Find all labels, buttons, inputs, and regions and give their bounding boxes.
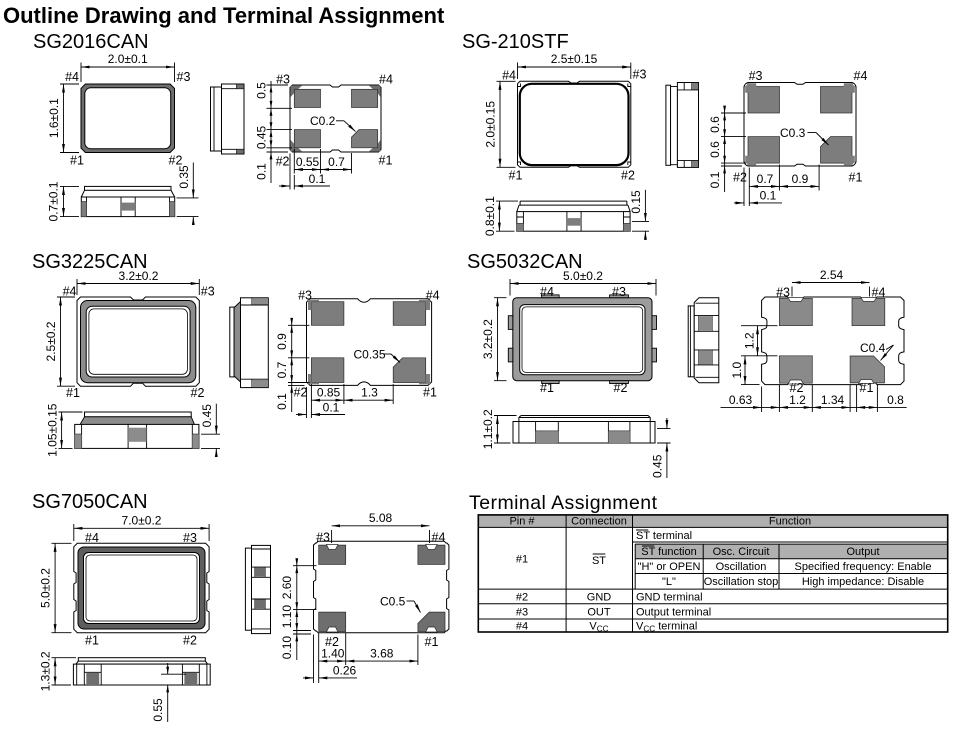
svg-text:0.1: 0.1 <box>309 172 326 186</box>
svg-text:Pin #: Pin # <box>509 515 535 527</box>
svg-text:#1: #1 <box>540 381 554 395</box>
svg-text:0.45: 0.45 <box>651 454 665 478</box>
svg-text:Oscillation: Oscillation <box>716 561 767 573</box>
svg-text:5.0±0.2: 5.0±0.2 <box>39 568 53 608</box>
svg-text:0.7: 0.7 <box>275 361 289 378</box>
svg-text:2.60: 2.60 <box>280 576 294 600</box>
svg-text:2.5±0.2: 2.5±0.2 <box>44 321 58 361</box>
svg-text:1.2: 1.2 <box>789 393 806 407</box>
svg-text:#4: #4 <box>516 621 528 633</box>
svg-text:0.6: 0.6 <box>708 141 722 158</box>
svg-text:#2: #2 <box>191 386 205 400</box>
svg-text:#4: #4 <box>540 285 554 299</box>
svg-text:#4: #4 <box>502 69 516 83</box>
svg-text:#3: #3 <box>749 69 763 83</box>
svg-text:OUT: OUT <box>587 607 611 619</box>
svg-text:0.35: 0.35 <box>177 165 191 189</box>
svg-text:#3: #3 <box>276 73 290 87</box>
svg-text:0.1: 0.1 <box>275 393 289 410</box>
svg-text:#3: #3 <box>633 68 647 82</box>
svg-text:Output terminal: Output terminal <box>636 607 711 619</box>
svg-text:0.1: 0.1 <box>255 163 269 180</box>
svg-text:0.26: 0.26 <box>333 664 357 678</box>
svg-text:2.54: 2.54 <box>820 268 844 282</box>
svg-text:0.8: 0.8 <box>887 393 904 407</box>
svg-text:#3: #3 <box>516 607 528 619</box>
svg-text:1.05±0.15: 1.05±0.15 <box>46 403 60 457</box>
svg-text:0.6: 0.6 <box>708 116 722 133</box>
svg-text:GND: GND <box>587 592 612 604</box>
svg-text:#4: #4 <box>872 286 886 300</box>
svg-text:#2: #2 <box>621 169 635 183</box>
svg-text:#1: #1 <box>66 386 80 400</box>
svg-text:C0.2: C0.2 <box>310 114 336 128</box>
svg-text:SG-210STF: SG-210STF <box>462 31 569 53</box>
svg-text:1.3±0.2: 1.3±0.2 <box>39 651 53 691</box>
svg-text:C0.35: C0.35 <box>354 348 386 362</box>
svg-text:#1: #1 <box>425 635 439 649</box>
svg-text:0.55: 0.55 <box>296 155 320 169</box>
svg-text:SG2016CAN: SG2016CAN <box>33 31 149 53</box>
svg-text:0.85: 0.85 <box>317 386 341 400</box>
svg-text:ST terminal: ST terminal <box>636 530 692 542</box>
svg-text:#3: #3 <box>776 286 790 300</box>
svg-text:#3: #3 <box>298 289 312 303</box>
svg-text:1.1±0.2: 1.1±0.2 <box>481 409 495 449</box>
svg-text:#4: #4 <box>65 70 79 84</box>
svg-text:#4: #4 <box>85 531 99 545</box>
svg-text:#1: #1 <box>516 554 528 566</box>
svg-text:#3: #3 <box>316 531 330 545</box>
svg-text:"H" or OPEN: "H" or OPEN <box>638 561 701 573</box>
svg-text:0.9: 0.9 <box>792 172 809 186</box>
svg-text:0.7±0.1: 0.7±0.1 <box>47 181 61 221</box>
svg-text:2.5±0.15: 2.5±0.15 <box>551 52 598 66</box>
svg-text:Function: Function <box>769 515 811 527</box>
svg-text:3.2±0.2: 3.2±0.2 <box>119 269 159 283</box>
svg-text:Oscillation stop: Oscillation stop <box>704 576 779 588</box>
svg-text:#1: #1 <box>423 386 437 400</box>
svg-text:1.34: 1.34 <box>821 393 845 407</box>
svg-text:#1: #1 <box>509 169 523 183</box>
svg-text:C0.4: C0.4 <box>860 341 886 355</box>
svg-text:Specified frequency: Enable: Specified frequency: Enable <box>795 561 932 573</box>
svg-text:0.1: 0.1 <box>760 189 777 203</box>
svg-text:C0.5: C0.5 <box>380 595 406 609</box>
svg-text:0.45: 0.45 <box>255 125 269 149</box>
svg-text:#4: #4 <box>63 285 77 299</box>
svg-text:#2: #2 <box>294 386 308 400</box>
svg-text:0.10: 0.10 <box>280 636 294 660</box>
svg-text:7.0±0.2: 7.0±0.2 <box>122 514 162 528</box>
svg-text:ST function: ST function <box>641 546 696 558</box>
svg-text:#3: #3 <box>183 531 197 545</box>
svg-text:#2: #2 <box>183 634 197 648</box>
svg-text:2.0±0.1: 2.0±0.1 <box>108 52 148 66</box>
svg-text:High impedance: Disable: High impedance: Disable <box>802 576 924 588</box>
svg-text:#4: #4 <box>854 69 868 83</box>
svg-text:GND terminal: GND terminal <box>636 592 703 604</box>
svg-text:#4: #4 <box>432 531 446 545</box>
svg-text:1.40: 1.40 <box>321 647 345 661</box>
svg-text:3.68: 3.68 <box>370 647 394 661</box>
svg-text:#3: #3 <box>201 285 215 299</box>
svg-text:Outline Drawing and Terminal A: Outline Drawing and Terminal Assignment <box>3 3 445 28</box>
svg-text:1.10: 1.10 <box>280 605 294 629</box>
svg-text:#2: #2 <box>614 381 628 395</box>
svg-text:0.63: 0.63 <box>729 393 753 407</box>
svg-text:#3: #3 <box>612 285 626 299</box>
svg-text:0.1: 0.1 <box>708 171 722 188</box>
svg-text:#1: #1 <box>860 381 874 395</box>
svg-text:0.5: 0.5 <box>255 82 269 99</box>
svg-text:#3: #3 <box>177 70 191 84</box>
svg-text:#2: #2 <box>733 171 747 185</box>
svg-text:0.7: 0.7 <box>757 172 774 186</box>
svg-text:1.0: 1.0 <box>730 362 744 379</box>
svg-text:#4: #4 <box>379 73 393 87</box>
svg-text:2.0±0.15: 2.0±0.15 <box>484 101 498 148</box>
svg-text:SG7050CAN: SG7050CAN <box>32 491 148 513</box>
svg-text:#2: #2 <box>516 592 528 604</box>
svg-text:0.8±0.1: 0.8±0.1 <box>483 196 497 236</box>
svg-text:ST: ST <box>592 555 606 567</box>
svg-text:Osc. Circuit: Osc. Circuit <box>713 546 770 558</box>
svg-text:0.55: 0.55 <box>151 698 165 722</box>
svg-text:0.9: 0.9 <box>275 333 289 350</box>
svg-text:#1: #1 <box>70 154 84 168</box>
svg-text:"L": "L" <box>662 576 676 588</box>
svg-text:0.45: 0.45 <box>200 404 214 428</box>
svg-text:#1: #1 <box>849 171 863 185</box>
svg-text:3.2±0.2: 3.2±0.2 <box>481 319 495 359</box>
svg-text:1.2: 1.2 <box>743 332 757 349</box>
svg-text:5.0±0.2: 5.0±0.2 <box>563 269 603 283</box>
svg-text:#4: #4 <box>426 289 440 303</box>
svg-text:C0.3: C0.3 <box>780 126 806 140</box>
svg-text:#2: #2 <box>276 155 290 169</box>
svg-text:Terminal Assignment: Terminal Assignment <box>469 492 658 514</box>
svg-text:0.7: 0.7 <box>328 155 345 169</box>
svg-text:0.1: 0.1 <box>323 401 340 415</box>
svg-text:1.3: 1.3 <box>361 386 378 400</box>
svg-text:Connection: Connection <box>571 515 627 527</box>
svg-text:0.15: 0.15 <box>629 190 643 214</box>
svg-text:Output: Output <box>846 546 879 558</box>
svg-text:1.6±0.1: 1.6±0.1 <box>47 98 61 138</box>
svg-text:#1: #1 <box>85 634 99 648</box>
svg-text:5.08: 5.08 <box>369 511 393 525</box>
svg-text:#1: #1 <box>379 154 393 168</box>
